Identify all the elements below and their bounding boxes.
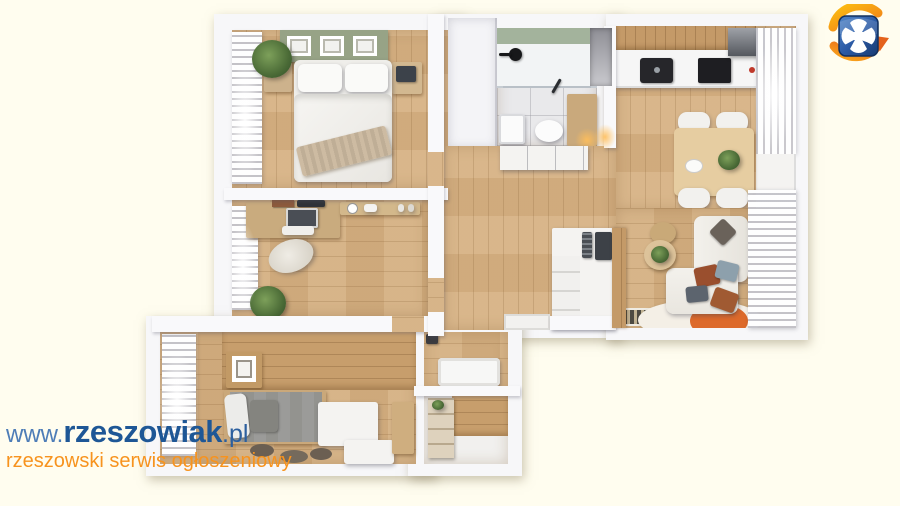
desk-chair	[264, 233, 318, 279]
dining-chair	[716, 188, 748, 208]
utility-shaft	[590, 28, 612, 86]
dining-table	[674, 128, 754, 196]
shower-arm	[499, 53, 511, 56]
laptop	[396, 66, 416, 82]
shelf-item	[408, 204, 414, 212]
bathroom-floor	[497, 28, 597, 146]
potted-plant	[250, 286, 286, 320]
rzeszowiak-shield-logo	[826, 4, 892, 72]
entry-threshold	[504, 314, 550, 330]
hallway-wardrobe	[552, 228, 614, 328]
table-plant	[718, 150, 740, 170]
living-curtains	[748, 190, 796, 328]
storage-room-floor	[424, 396, 508, 464]
kitchen-sink	[640, 58, 673, 83]
picture-frame	[353, 36, 377, 56]
office-floor	[232, 200, 428, 316]
kids-door-opening	[392, 316, 424, 332]
double-bed	[294, 60, 392, 182]
books	[272, 200, 294, 207]
cushion	[685, 285, 709, 303]
logo-svg	[826, 4, 892, 72]
wall-bedroom-office	[224, 188, 448, 200]
watermark-www: www.	[6, 423, 63, 447]
watermark: www.rzeszowiak.pl rzeszowski serwis ogło…	[6, 416, 292, 471]
storage-accent-wall	[452, 396, 508, 436]
clock	[348, 204, 357, 213]
bedroom-floor	[232, 30, 448, 188]
kitchen-floor	[616, 26, 796, 210]
rug-spot	[310, 448, 332, 460]
kids-nightstand	[226, 352, 262, 388]
shelf-item	[398, 204, 404, 212]
office-door-opening	[428, 278, 444, 312]
wardrobe-vent-panel	[582, 232, 592, 258]
floorplan-image: www.rzeszowiak.pl rzeszowski serwis ogło…	[0, 0, 900, 506]
watermark-tagline: rzeszowski serwis ogłoszeniowy	[6, 451, 292, 471]
watermark-tld: .pl	[222, 422, 248, 447]
small-plant	[432, 400, 444, 410]
bedroom-door-opening	[428, 152, 444, 186]
laptop	[297, 200, 325, 207]
wall-corridor-bottom	[550, 316, 616, 330]
built-in-closet	[448, 18, 497, 148]
bathroom-sink	[499, 114, 525, 144]
wall-shelf	[340, 202, 420, 215]
kitchen-window-curtain	[756, 28, 796, 154]
coffee-table-plant	[651, 246, 669, 263]
bathroom-green-wall	[497, 28, 597, 44]
kids-bookcase	[392, 402, 414, 454]
photo-frame	[232, 356, 256, 382]
watermark-brand: rzeszowiak	[63, 416, 222, 447]
kids-desk-return	[344, 440, 394, 464]
potted-plant	[252, 40, 292, 78]
shower-tray	[438, 358, 500, 386]
pillow	[345, 64, 388, 92]
picture-frame	[320, 36, 344, 56]
red-kettle	[749, 67, 755, 73]
wall-utility-storage	[414, 386, 520, 396]
plate	[686, 160, 702, 172]
monitor	[286, 208, 318, 228]
keyboard	[282, 226, 314, 235]
wardrobe-glass-panel	[595, 232, 612, 260]
watermark-url: www.rzeszowiak.pl	[6, 416, 292, 447]
pillow	[298, 64, 342, 92]
dining-chair	[678, 188, 710, 208]
toilet	[535, 120, 563, 142]
faucet	[654, 67, 660, 73]
utility-room-floor	[424, 332, 508, 388]
shower-glass	[503, 86, 591, 88]
bath-vanity	[567, 94, 597, 146]
hallway-floor	[444, 146, 616, 330]
hallway-cabinets	[500, 146, 588, 170]
bedroom-headboard-wall	[280, 30, 388, 62]
living-tv-wall	[612, 228, 626, 328]
shelf-box	[364, 204, 377, 212]
cooktop	[698, 58, 731, 83]
